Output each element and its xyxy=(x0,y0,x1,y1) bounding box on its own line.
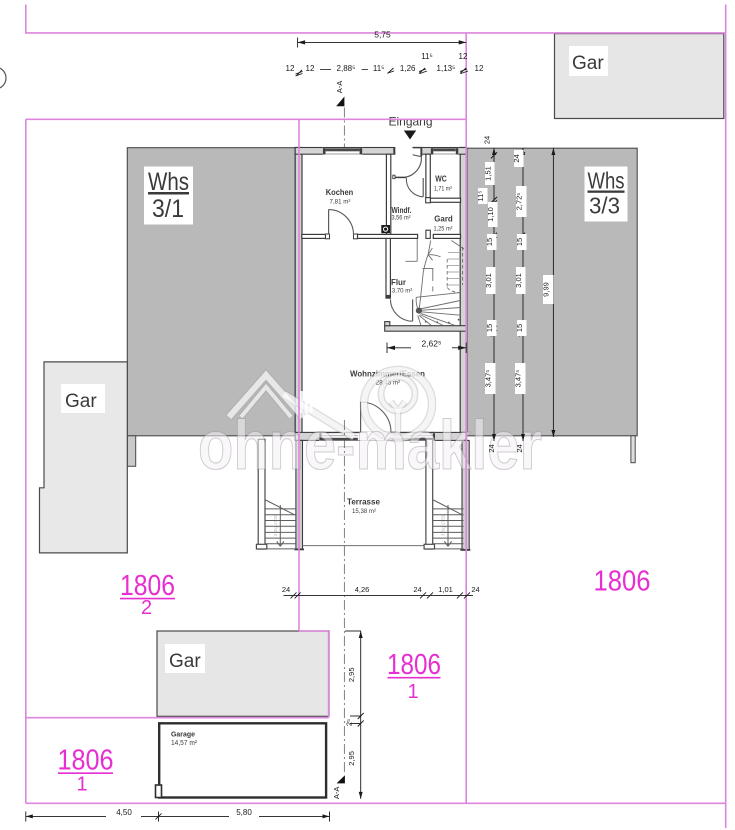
svg-text:Gar: Gar xyxy=(169,651,201,672)
svg-text:15: 15 xyxy=(485,324,494,332)
svg-text:11⁵: 11⁵ xyxy=(373,64,385,73)
svg-text:24: 24 xyxy=(413,585,421,594)
svg-text:Terrasse: Terrasse xyxy=(347,497,381,506)
svg-text:2,72⁵: 2,72⁵ xyxy=(515,193,524,211)
svg-text:24: 24 xyxy=(483,136,492,144)
svg-text:1,26: 1,26 xyxy=(400,64,416,73)
svg-text:3,01: 3,01 xyxy=(514,273,523,288)
svg-text:24: 24 xyxy=(487,444,496,452)
svg-text:1: 1 xyxy=(407,681,418,703)
svg-text:Gar: Gar xyxy=(65,391,97,412)
svg-text:24: 24 xyxy=(515,444,524,452)
svg-text:24: 24 xyxy=(282,585,290,594)
svg-text:Flur: Flur xyxy=(391,278,407,287)
svg-text:5,75: 5,75 xyxy=(374,30,391,40)
svg-text:24: 24 xyxy=(471,585,479,594)
svg-text:1: 1 xyxy=(76,774,87,796)
svg-text:2,62⁵: 2,62⁵ xyxy=(421,339,441,349)
svg-text:7,81 m²: 7,81 m² xyxy=(330,199,352,206)
svg-text:2: 2 xyxy=(141,597,152,619)
svg-text:Whs: Whs xyxy=(588,168,625,194)
svg-text:11⁵: 11⁵ xyxy=(421,52,433,61)
svg-text:14,57 m²: 14,57 m² xyxy=(171,740,198,747)
svg-text:3,01: 3,01 xyxy=(484,273,493,288)
svg-text:15: 15 xyxy=(515,324,524,332)
svg-text:2,88⁵: 2,88⁵ xyxy=(337,64,356,73)
svg-text:9,99: 9,99 xyxy=(542,282,551,297)
svg-text:3,47⁵: 3,47⁵ xyxy=(514,370,523,388)
svg-text:1806: 1806 xyxy=(594,566,651,598)
svg-text:2,95: 2,95 xyxy=(347,667,356,682)
svg-text:Gard: Gard xyxy=(434,215,453,224)
svg-text:1806: 1806 xyxy=(387,649,441,681)
svg-text:Gar: Gar xyxy=(572,53,604,74)
svg-text:A-A: A-A xyxy=(332,787,341,800)
svg-text:4,26: 4,26 xyxy=(355,585,370,594)
svg-text:15: 15 xyxy=(485,238,494,246)
svg-text:Kochen: Kochen xyxy=(326,188,354,197)
svg-text:3/1: 3/1 xyxy=(152,195,184,223)
svg-text:WC: WC xyxy=(435,173,447,183)
svg-text:11⁵: 11⁵ xyxy=(476,191,485,202)
svg-text:4,50: 4,50 xyxy=(116,808,132,817)
svg-text:1,13⁵: 1,13⁵ xyxy=(437,64,456,73)
svg-text:Eingang: Eingang xyxy=(388,115,432,129)
svg-text:1,71 m²: 1,71 m² xyxy=(434,185,453,192)
svg-text:1,25 m²: 1,25 m² xyxy=(434,225,454,232)
svg-text:15,38 m²: 15,38 m² xyxy=(352,508,377,515)
svg-text:2,95: 2,95 xyxy=(347,751,356,766)
svg-text:1806: 1806 xyxy=(58,745,114,777)
svg-text:1,10: 1,10 xyxy=(486,207,495,222)
svg-text:12: 12 xyxy=(475,64,484,73)
svg-text:3 Stg 17/29: 3 Stg 17/29 xyxy=(273,514,278,536)
svg-text:3,70 m²: 3,70 m² xyxy=(392,288,413,295)
svg-text:Garage: Garage xyxy=(171,730,195,739)
svg-text:2⁵: 2⁵ xyxy=(345,719,354,726)
svg-text:12: 12 xyxy=(459,52,468,61)
svg-text:3,47⁵: 3,47⁵ xyxy=(484,370,493,388)
svg-text:3/3: 3/3 xyxy=(589,193,620,219)
svg-text:12: 12 xyxy=(306,64,315,73)
svg-text:A-A: A-A xyxy=(335,81,344,94)
svg-text:24: 24 xyxy=(512,154,521,162)
svg-text:12: 12 xyxy=(286,64,295,73)
svg-text:3,56 m²: 3,56 m² xyxy=(392,215,412,222)
svg-text:3 Stg 17/29: 3 Stg 17/29 xyxy=(441,514,446,536)
svg-text:Whs: Whs xyxy=(148,168,189,196)
svg-text:1,51: 1,51 xyxy=(484,166,493,181)
svg-text:1,01: 1,01 xyxy=(438,585,453,594)
svg-text:5,80: 5,80 xyxy=(236,808,252,817)
svg-text:15: 15 xyxy=(515,238,524,246)
